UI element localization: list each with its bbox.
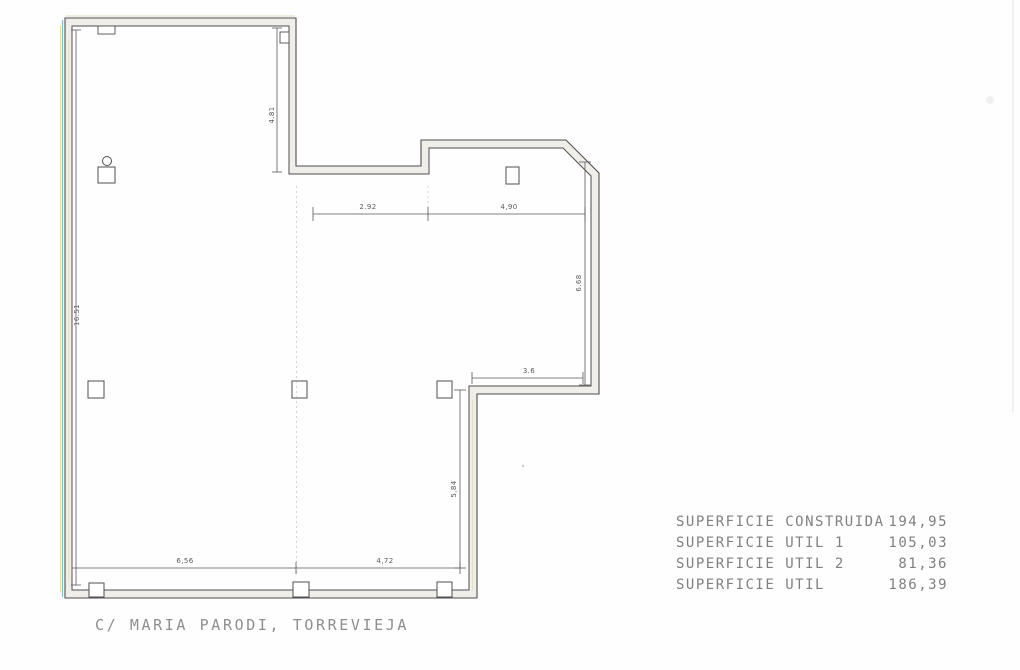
area-label: SUPERFICIE UTIL 2: [676, 554, 845, 575]
dim-label-bottom-span-left: 6,56: [176, 557, 193, 565]
pilaster: [89, 583, 104, 597]
area-value: 105,03: [888, 533, 948, 554]
right-upper-wall-step: [280, 32, 289, 43]
area-value: 194,95: [888, 512, 948, 533]
area-label: SUPERFICIE CONSTRUIDA: [676, 512, 885, 533]
dim-label-left-wall-height: 16.51: [73, 304, 81, 326]
area-value: 186,39: [888, 575, 948, 596]
dimension-lower-right-height: [454, 390, 466, 568]
dim-label-right-room-height: 6.68: [575, 274, 583, 291]
dim-label-upper-left-height: 4.81: [268, 106, 276, 123]
partition-lines: [297, 186, 429, 576]
area-row: SUPERFICIE UTIL 1 105,03: [676, 533, 948, 554]
dim-label-bottom-span-right: 4,72: [376, 557, 393, 565]
scan-smudge: [986, 96, 994, 104]
scanned-floorplan-page: 4.81 16.51 2.92 4,90 6.68 3.6 6,56 4,72 …: [0, 0, 1020, 670]
area-row: SUPERFICIE UTIL 2 81,36: [676, 554, 948, 575]
dimension-upper-left-height: [272, 28, 282, 172]
wall-outline-inner: [72, 26, 591, 590]
top-wall-notch: [98, 26, 115, 34]
dim-label-right-room-width: 3.6: [523, 367, 535, 375]
column: [292, 381, 307, 398]
scan-speck: [522, 465, 524, 467]
areas-table: SUPERFICIE CONSTRUIDA 194,95 SUPERFICIE …: [676, 512, 948, 596]
dim-label-lower-right-height: 5,84: [450, 480, 458, 497]
dim-label-top-span-right: 4,90: [500, 203, 517, 211]
column: [506, 167, 519, 184]
wall-outline-outer: [65, 18, 599, 598]
area-label: SUPERFICIE UTIL 1: [676, 533, 845, 554]
area-value: 81,36: [898, 554, 948, 575]
plan-address: C/ MARIA PARODI, TORREVIEJA: [95, 616, 409, 634]
column: [88, 381, 104, 398]
dimension-bottom-span: [72, 562, 460, 574]
dim-label-top-span-left: 2.92: [359, 203, 376, 211]
area-row: SUPERFICIE CONSTRUIDA 194,95: [676, 512, 948, 533]
area-label: SUPERFICIE UTIL: [676, 575, 825, 596]
dimension-top-span: [313, 207, 585, 221]
dimensions: [71, 28, 591, 585]
column-knob: [103, 157, 112, 166]
dimension-right-room-height: [579, 162, 591, 385]
column: [98, 167, 115, 183]
pilaster: [293, 582, 309, 597]
wall-band: [65, 18, 599, 598]
area-row: SUPERFICIE UTIL 186,39: [676, 575, 948, 596]
columns: [88, 157, 519, 598]
walls: [61, 16, 600, 598]
pilaster: [437, 582, 452, 597]
column: [437, 381, 452, 398]
